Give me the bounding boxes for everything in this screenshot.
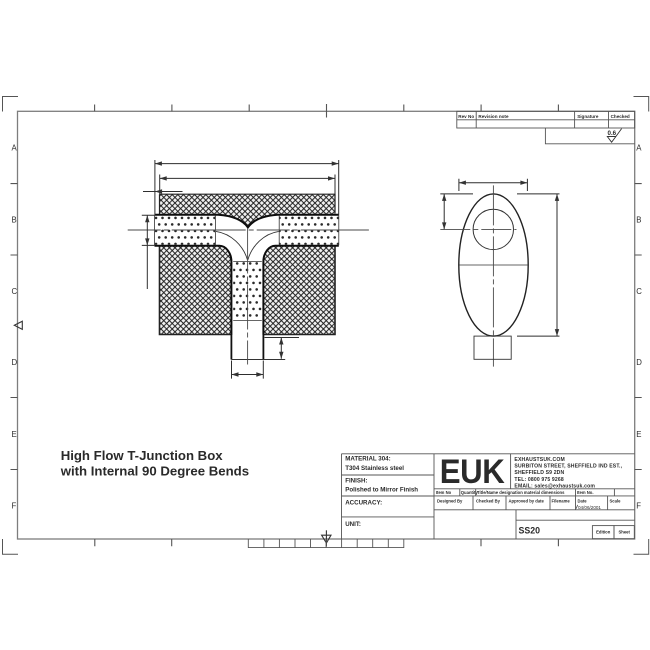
svg-text:Item No.: Item No. [577, 490, 594, 495]
svg-text:T304 Stainless steel: T304 Stainless steel [345, 465, 404, 472]
svg-text:MATERIAL 304:: MATERIAL 304: [345, 456, 391, 463]
svg-text:Sheet: Sheet [618, 530, 630, 535]
svg-text:SHEFFIELD S9 2DN: SHEFFIELD S9 2DN [514, 470, 564, 476]
svg-text:Checked: Checked [611, 114, 630, 119]
svg-text:Rev No: Rev No [458, 114, 474, 119]
svg-text:SURBITON STREET, SHEFFIELD IND: SURBITON STREET, SHEFFIELD IND EST., [514, 464, 622, 470]
svg-text:E: E [12, 430, 17, 439]
svg-text:with Internal 90 Degree Bends: with Internal 90 Degree Bends [60, 463, 249, 478]
svg-text:Checked By: Checked By [476, 498, 501, 503]
svg-text:A: A [12, 144, 18, 153]
svg-text:Date: Date [578, 498, 588, 503]
svg-text:SS20: SS20 [519, 525, 541, 535]
svg-text:Revision note: Revision note [478, 114, 509, 119]
svg-text:Approved by date: Approved by date [509, 498, 545, 503]
svg-text:Designed By: Designed By [437, 498, 463, 503]
svg-text:Quantity: Quantity [461, 490, 479, 495]
svg-text:ACCURACY:: ACCURACY: [345, 499, 382, 506]
svg-text:Edition: Edition [596, 530, 611, 535]
svg-text:Item No: Item No [436, 490, 452, 495]
svg-text:TEL: 0800 975 9268: TEL: 0800 975 9268 [514, 477, 563, 483]
svg-text:Title/Name designation materia: Title/Name designation material dimensio… [477, 490, 565, 495]
svg-text:E: E [636, 430, 641, 439]
svg-text:FINISH:: FINISH: [345, 478, 367, 485]
svg-text:F: F [12, 501, 17, 510]
svg-text:D: D [12, 358, 18, 367]
svg-text:Polished to Mirror Finish: Polished to Mirror Finish [345, 487, 418, 494]
svg-text:F: F [636, 501, 641, 510]
svg-text:High Flow T-Junction Box: High Flow T-Junction Box [61, 448, 224, 463]
svg-text:Scale: Scale [610, 498, 622, 503]
svg-text:0.6: 0.6 [608, 130, 617, 137]
svg-text:B: B [12, 216, 17, 225]
svg-text:Filename: Filename [552, 498, 571, 503]
svg-text:D: D [636, 358, 642, 367]
svg-text:Signature: Signature [577, 114, 599, 119]
svg-text:A: A [636, 144, 642, 153]
svg-text:C: C [636, 287, 642, 296]
svg-text:EXHAUSTSUK.COM: EXHAUSTSUK.COM [514, 457, 565, 463]
svg-text:EMAIL: sales@exhaustsuk.com: EMAIL: sales@exhaustsuk.com [514, 483, 595, 489]
svg-text:B: B [636, 216, 641, 225]
svg-text:04/06/2001: 04/06/2001 [578, 505, 601, 510]
svg-text:C: C [12, 287, 18, 296]
svg-text:UNIT:: UNIT: [345, 521, 361, 528]
svg-text:EUK: EUK [440, 451, 505, 490]
